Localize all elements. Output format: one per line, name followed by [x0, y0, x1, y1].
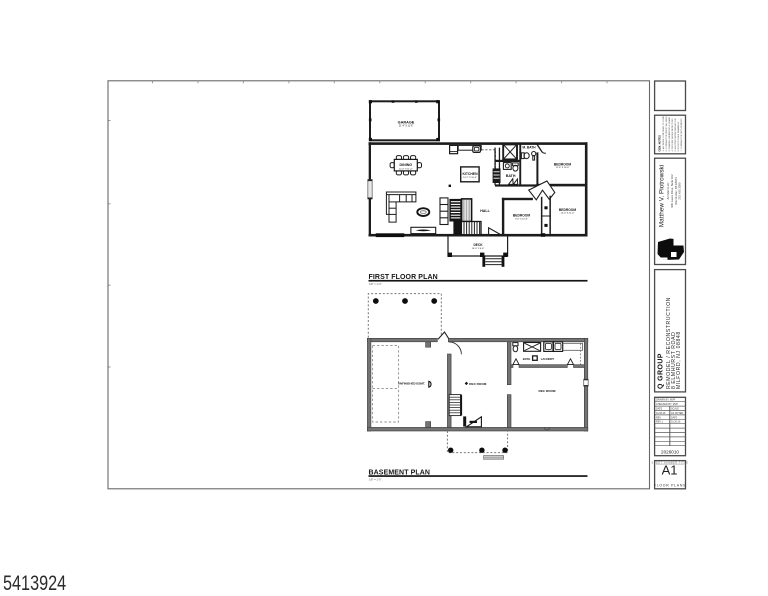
svg-text:BATH: BATH [506, 174, 516, 178]
svg-text:DATE: DATE [671, 416, 678, 419]
svg-text:14'-2" X 10'-0": 14'-2" X 10'-0" [463, 177, 477, 179]
svg-text:2026010: 2026010 [661, 450, 679, 455]
svg-text:REV 1: REV 1 [656, 421, 664, 424]
svg-text:01.20.26: 01.20.26 [671, 421, 681, 424]
svg-text:1/8" = 1'-0": 1/8" = 1'-0" [369, 282, 382, 286]
svg-text:REV: REV [656, 416, 661, 419]
svg-text:AS NOTED: AS NOTED [671, 412, 683, 415]
svg-text:Q GROUP: Q GROUP [657, 353, 664, 389]
svg-text:4. PROVIDE SMOKE DETECTORS: 4. PROVIDE SMOKE DETECTORS [672, 118, 674, 152]
svg-text:BEDROOM: BEDROOM [554, 162, 571, 166]
svg-text:SCALE: SCALE [671, 408, 679, 411]
svg-text:LAUNDRY: LAUNDRY [541, 357, 555, 361]
svg-text:1/8" = 1'-0": 1/8" = 1'-0" [369, 477, 382, 481]
svg-text:M. BATH: M. BATH [522, 146, 536, 150]
svg-text:2. CONTRACTOR VERIFY ALL DIMS.: 2. CONTRACTOR VERIFY ALL DIMS. [665, 116, 668, 152]
svg-text:7. CONTRACTOR GETS PERMITS: 7. CONTRACTOR GETS PERMITS [680, 118, 683, 152]
svg-text:FIRST FLOOR PLAN: FIRST FLOOR PLAN [369, 274, 438, 281]
svg-text:20'-0" X 6'-6": 20'-0" X 6'-6" [472, 248, 485, 250]
svg-text:BEDROOM: BEDROOM [513, 213, 530, 217]
svg-text:BEDROOM: BEDROOM [559, 208, 576, 212]
svg-text:MILFORD, NJ 08848: MILFORD, NJ 08848 [676, 331, 682, 389]
svg-text:21'-4" X 11'-6": 21'-4" X 11'-6" [399, 126, 414, 128]
svg-text:REC ROOM: REC ROOM [469, 382, 486, 386]
svg-text:1. ALL WORK CONFORMS TO CODE: 1. ALL WORK CONFORMS TO CODE [662, 115, 665, 151]
svg-text:215.435.3380: 215.435.3380 [677, 182, 681, 200]
svg-text:REC ROOM: REC ROOM [538, 389, 555, 393]
svg-text:KITCHEN: KITCHEN [462, 172, 478, 176]
svg-text:6. DO NOT SCALE DRAWINGS: 6. DO NOT SCALE DRAWINGS [677, 121, 680, 151]
svg-text:DRAWN BY: MVP: DRAWN BY: MVP [656, 399, 676, 402]
svg-text:Matthew V. Piotrowski: Matthew V. Piotrowski [659, 165, 666, 227]
svg-text:12'-0" X 11'-0": 12'-0" X 11'-0" [399, 168, 413, 170]
svg-text:GARAGE: GARAGE [398, 120, 415, 124]
svg-text:CHECKED BY: MVP: CHECKED BY: MVP [656, 403, 678, 406]
svg-text:DECK: DECK [473, 243, 483, 247]
svg-text:A1: A1 [662, 462, 678, 477]
svg-text:BATH: BATH [523, 357, 531, 361]
svg-text:01.05.26: 01.05.26 [656, 412, 666, 415]
svg-text:HALL: HALL [480, 209, 490, 213]
svg-text:9'-0" X 10'-8": 9'-0" X 10'-8" [515, 218, 528, 220]
svg-text:DINING: DINING [400, 163, 413, 167]
svg-text:FLOOR PLANS: FLOOR PLANS [654, 483, 686, 487]
svg-text:3. FRAMING LUMBER NO.2 GRADE: 3. FRAMING LUMBER NO.2 GRADE [668, 116, 671, 151]
svg-text:10'-6" X 11'-0": 10'-6" X 11'-0" [561, 213, 575, 215]
svg-text:11'-6" X 10'-0": 11'-6" X 10'-0" [556, 167, 570, 169]
svg-text:DATE: DATE [656, 408, 663, 411]
svg-text:GEN. NOTES: GEN. NOTES [657, 135, 661, 152]
svg-text:UNFINISHED BSMT.: UNFINISHED BSMT. [398, 381, 425, 385]
svg-text:5. ELECTRIC WORK PER NEC ED.: 5. ELECTRIC WORK PER NEC ED. [675, 118, 677, 152]
